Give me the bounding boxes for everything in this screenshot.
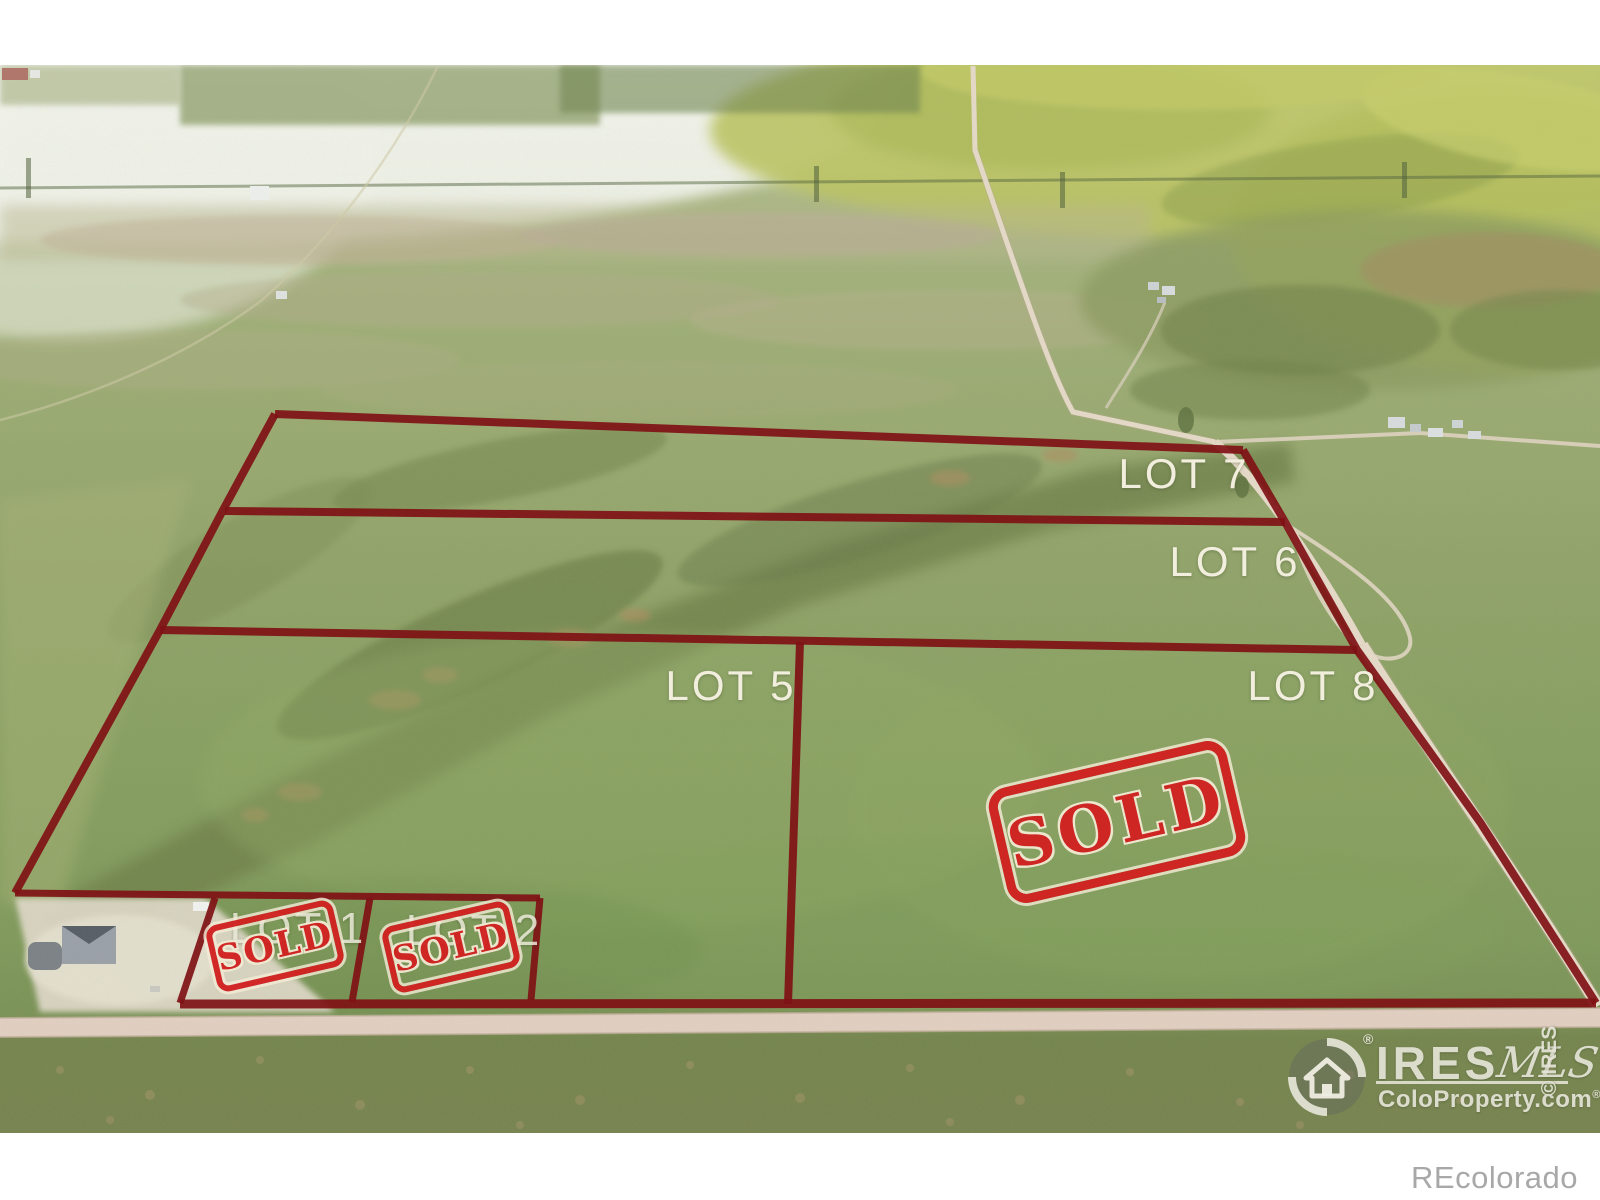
lot-label-5: LOT 5 bbox=[666, 662, 797, 710]
ires-house-logo-icon bbox=[1284, 1034, 1370, 1120]
listing-photo-canvas: { "lots": [ {"id": "lot-1", "label": "LO… bbox=[0, 0, 1600, 1200]
copyright-ires-vertical: © IRES bbox=[1538, 1072, 1600, 1096]
sold-stamp-text: SOLD bbox=[213, 913, 338, 980]
lot-label-6: LOT 6 bbox=[1170, 538, 1301, 586]
bottom-letterbox bbox=[0, 1133, 1600, 1200]
lot-label-7: LOT 7 bbox=[1119, 450, 1250, 498]
sold-stamp-text: SOLD bbox=[389, 914, 514, 981]
aerial-photo bbox=[0, 0, 1600, 1200]
top-letterbox bbox=[0, 0, 1600, 65]
recolorado-watermark: REcolorado bbox=[1411, 1160, 1578, 1196]
lot-label-8: LOT 8 bbox=[1248, 662, 1379, 710]
registered-mark: ® bbox=[1363, 1031, 1373, 1047]
